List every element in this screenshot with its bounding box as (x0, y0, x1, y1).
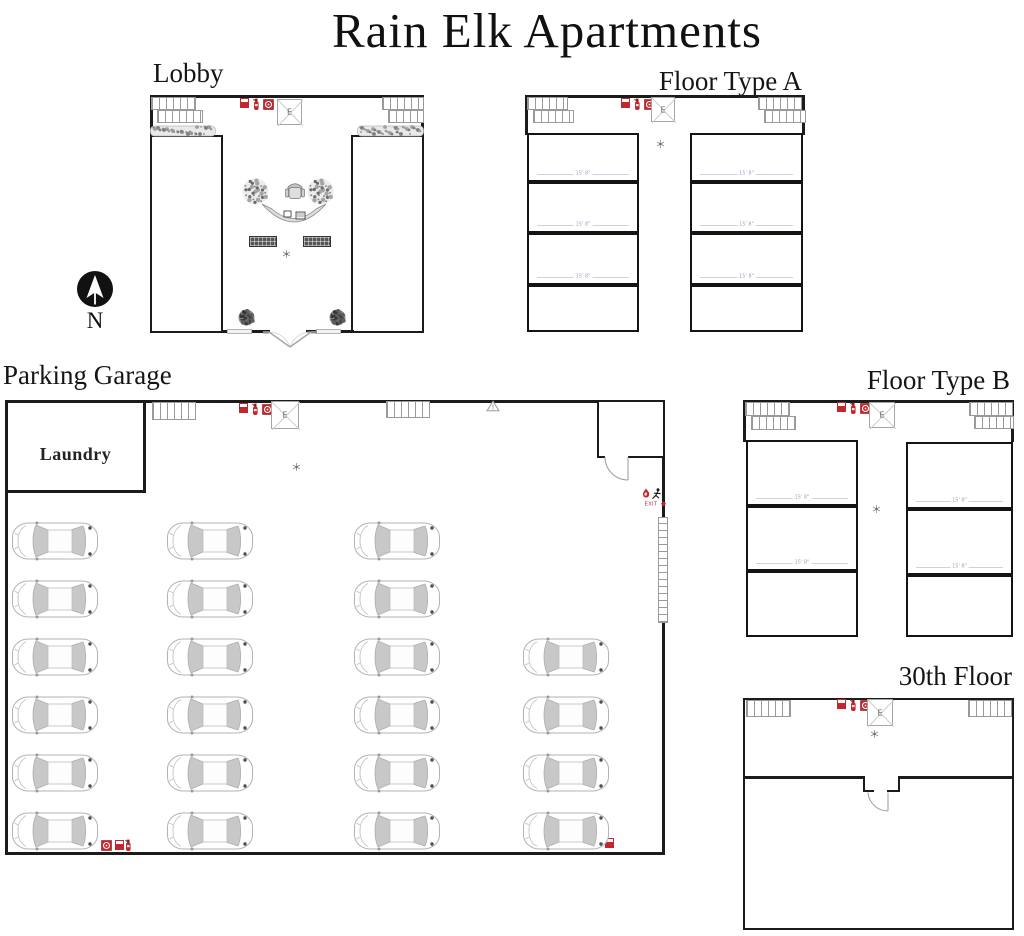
staircase (758, 97, 802, 110)
elevator: E (867, 699, 893, 726)
lobby-right-room (351, 135, 424, 333)
parked-car (353, 636, 441, 678)
dimension-label: 15' 8" (737, 274, 756, 280)
parked-car (522, 694, 610, 736)
section-label-floor-a: Floor Type A (600, 66, 802, 97)
staircase (382, 97, 424, 110)
elevator-label: E (278, 108, 301, 117)
fire-extinguisher-icon (251, 402, 259, 416)
door-arc (866, 792, 890, 813)
potted-plant (238, 309, 255, 326)
pull-station-icon (837, 699, 846, 709)
pull-station-icon (239, 403, 248, 413)
lobby-window-left (227, 329, 252, 334)
warning-triangle-icon (486, 399, 500, 411)
parked-car (11, 694, 99, 736)
parked-car (166, 520, 254, 562)
floor-b-unit (746, 571, 858, 637)
fire-extinguisher-icon (849, 698, 857, 712)
elevator: E (869, 402, 895, 428)
sprinkler-icon (656, 136, 665, 146)
dimension-label: 15' 8" (574, 222, 593, 228)
parked-car (166, 636, 254, 678)
section-label-lobby: Lobby (153, 58, 224, 89)
staircase (151, 97, 196, 110)
parked-car (11, 810, 99, 852)
staircase (533, 110, 574, 123)
elevator: E (271, 401, 299, 429)
parked-car (166, 810, 254, 852)
parked-car (11, 752, 99, 794)
hedge (357, 124, 424, 136)
pull-station-icon (115, 840, 124, 850)
page-title: Rain Elk Apartments (290, 2, 804, 59)
staircase (152, 402, 196, 420)
parked-car (11, 520, 99, 562)
section-label-30th-floor: 30th Floor (810, 661, 1012, 692)
floor-plan-page: Rain Elk Apartments Lobby Floor Type A P… (0, 0, 1024, 936)
compass-needle-icon (77, 271, 113, 307)
bench (303, 236, 331, 247)
garage-entry-room (597, 400, 665, 458)
pull-station-icon (240, 98, 249, 108)
staircase (388, 110, 424, 123)
floor-30-divider-left (745, 776, 863, 779)
floor-a-unit (690, 285, 803, 332)
fire-alarm-bell-icon (263, 97, 274, 108)
fire-exit-sign: EXIT (639, 487, 667, 510)
floor-30-divider-right (900, 776, 1012, 779)
elevator-label: E (870, 411, 894, 420)
sprinkler-icon (282, 246, 291, 256)
parked-car (353, 694, 441, 736)
laundry-label: Laundry (5, 444, 146, 465)
lobby-window-right (316, 329, 341, 334)
parked-car (166, 752, 254, 794)
staircase (968, 700, 1012, 717)
staircase (974, 416, 1014, 429)
parked-car (11, 636, 99, 678)
fire-extinguisher-icon (124, 838, 132, 852)
pull-station-icon (621, 98, 630, 108)
parked-car (353, 520, 441, 562)
sprinkler-icon (292, 459, 301, 469)
staircase (746, 700, 791, 717)
reception-desk (256, 200, 332, 232)
sprinkler-icon (872, 501, 881, 511)
parked-car (353, 752, 441, 794)
elevator-label: E (272, 411, 298, 420)
lobby-left-room (150, 135, 223, 333)
staircase (751, 416, 796, 430)
dimension-label: 15' 8" (574, 171, 593, 177)
staircase (527, 97, 568, 110)
elevator-label: E (652, 105, 674, 114)
parked-car (522, 636, 610, 678)
door-arc (603, 456, 630, 483)
dimension-label: 15' 8" (574, 274, 593, 280)
elevator: E (651, 97, 675, 122)
staircase (386, 401, 430, 418)
dimension-label: 15' 8" (793, 560, 812, 566)
parked-car (11, 578, 99, 620)
floor-b-unit (906, 575, 1013, 637)
dimension-label: 15' 8" (950, 498, 969, 504)
sprinkler-icon (870, 726, 879, 736)
parked-car (522, 810, 610, 852)
elevator: E (277, 99, 302, 125)
staircase (745, 402, 790, 416)
office-chair (284, 180, 306, 202)
compass-label: N (77, 308, 113, 334)
fire-extinguisher-icon (633, 97, 641, 111)
section-label-parking-garage: Parking Garage (3, 360, 172, 391)
svg-text:EXIT: EXIT (645, 502, 658, 508)
parked-car (522, 752, 610, 794)
dimension-label: 15' 8" (950, 564, 969, 570)
staircase (764, 110, 806, 123)
parked-car (353, 810, 441, 852)
potted-plant (329, 309, 346, 326)
bench (249, 236, 277, 247)
elevator-label: E (868, 708, 892, 717)
parked-car (166, 694, 254, 736)
pull-station-icon (837, 402, 846, 412)
fire-extinguisher-icon (849, 401, 857, 415)
fire-extinguisher-icon (252, 97, 260, 111)
double-door (263, 331, 317, 353)
fire-alarm-bell-icon (101, 838, 112, 849)
staircase (157, 110, 203, 123)
dimension-label: 15' 8" (793, 495, 812, 501)
parked-car (353, 578, 441, 620)
hedge (150, 124, 216, 136)
staircase (969, 402, 1013, 416)
parked-car (166, 578, 254, 620)
floor-a-unit (527, 285, 639, 332)
dimension-label: 15' 8" (737, 171, 756, 177)
section-label-floor-b: Floor Type B (808, 365, 1010, 396)
garage-gate (658, 517, 668, 623)
compass (77, 271, 113, 307)
dimension-label: 15' 8" (737, 222, 756, 228)
